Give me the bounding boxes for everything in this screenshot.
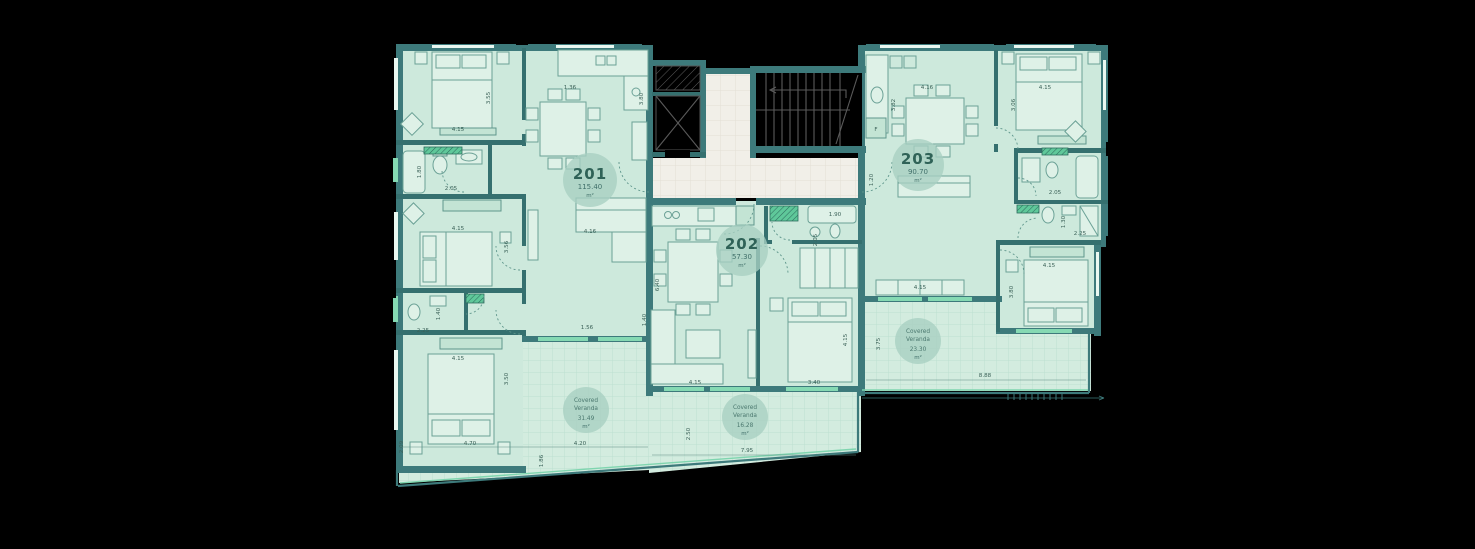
unit-area-unit: m² [586, 192, 594, 199]
unit-number: 201 [573, 165, 607, 183]
window [393, 296, 398, 322]
dresser [1030, 247, 1084, 257]
toilet [433, 156, 447, 174]
window [786, 387, 838, 391]
window [1096, 252, 1099, 296]
nightstand [410, 442, 422, 454]
veranda-area-unit: m² [582, 423, 590, 430]
dimension-label: 4.15 [689, 380, 702, 386]
nightstand [1088, 52, 1100, 64]
dining-table [906, 98, 964, 144]
window [1014, 45, 1074, 48]
dimension-label: 1.80 [417, 165, 423, 178]
dining-table [668, 242, 718, 302]
dimension-label: 4.15 [452, 356, 465, 362]
dimension-label: 3.40 [808, 380, 821, 386]
sliding-door [878, 297, 922, 301]
dimension-label: 3.50 [504, 372, 510, 385]
sliding-door [664, 387, 704, 391]
unit-number: 203 [901, 150, 935, 168]
dimension-label: 4.15 [452, 226, 465, 232]
sliding-door [598, 337, 642, 341]
double-bed [420, 232, 492, 286]
dimension-label: 4.15 [843, 333, 849, 346]
dining-table [540, 102, 586, 156]
sofa-section [651, 364, 723, 384]
veranda-area: 31.49 [578, 416, 595, 422]
window [394, 350, 398, 430]
floor-plan-stage: F [0, 0, 1475, 549]
veranda-badge-201: Covered Veranda 31.49 m² [563, 387, 609, 433]
window [393, 158, 398, 182]
dimension-label: 4.15 [452, 127, 465, 133]
shower-marker [1042, 148, 1068, 155]
dimension-label: 1.86 [539, 454, 545, 467]
dimension-label: 4.15 [1039, 85, 1052, 91]
unit-area-unit: m² [914, 177, 922, 184]
laundry-marker [770, 206, 798, 221]
veranda-badge-203: Covered Veranda 23.30 m² [895, 318, 941, 364]
veranda-label: Veranda [906, 337, 930, 343]
nightstand [1002, 52, 1014, 64]
veranda-label: Veranda [574, 406, 598, 412]
dimension-label: 3.06 [1011, 98, 1017, 111]
veranda-area-unit: m² [741, 430, 749, 437]
washing-machine-marker [1017, 205, 1039, 213]
fridge-label: F [874, 127, 877, 133]
toilet [830, 224, 840, 238]
dimension-label: 7.95 [741, 448, 754, 454]
unit-area: 90.70 [908, 168, 928, 176]
dimension-label: 2.05 [813, 233, 819, 246]
dimension-label: 1.90 [829, 212, 842, 218]
wardrobe [800, 248, 858, 288]
dresser [440, 338, 502, 349]
dimension-label: 4.70 [464, 441, 477, 447]
unit-area-unit: m² [738, 262, 746, 269]
veranda-label: Veranda [733, 413, 757, 419]
nightstand [498, 442, 510, 454]
nightstand [1006, 260, 1018, 272]
nightstand [415, 52, 427, 64]
window [1016, 329, 1072, 333]
dimension-label: 1.40 [436, 307, 442, 320]
dimension-label: 8.88 [979, 373, 992, 379]
veranda-label: Covered [574, 398, 598, 404]
dimension-label: 4.16 [921, 85, 934, 91]
stair-core [656, 66, 862, 157]
nightstand [497, 52, 509, 64]
core-landing-floor [702, 74, 750, 158]
dimension-label: 1.56 [581, 325, 594, 331]
dimension-label: 2.25 [1074, 231, 1087, 237]
window [1103, 60, 1106, 110]
staircase [756, 73, 862, 146]
veranda-label: Covered [733, 405, 757, 411]
ottoman [686, 330, 720, 358]
washbasin-cabinet [1022, 158, 1040, 182]
unit-number: 202 [725, 235, 759, 253]
veranda-area: 16.28 [737, 423, 754, 429]
bathtub [1076, 156, 1098, 198]
toilet [408, 304, 420, 320]
kitchen-counter [558, 50, 648, 76]
dimension-label: 6.40 [655, 278, 661, 291]
shower-marker [424, 147, 462, 154]
veranda-badge-202: Covered Veranda 16.28 m² [722, 394, 768, 440]
dimension-label: 4.15 [1043, 263, 1056, 269]
dimension-label: 3.82 [891, 99, 897, 111]
sliding-door [928, 297, 972, 301]
bench [440, 128, 496, 135]
dimension-label: 4.20 [574, 441, 587, 447]
vent-shaft [656, 66, 700, 90]
dimension-label: 2.05 [1049, 190, 1062, 196]
dimension-label: 3.80 [1009, 285, 1015, 298]
railing-ticks [1008, 394, 1062, 400]
dimension-label: 1.20 [869, 173, 875, 186]
washing-machine-marker [466, 294, 484, 303]
veranda-area: 23.30 [910, 347, 927, 353]
window [394, 212, 398, 260]
dimension-label: 3.55 [486, 91, 492, 104]
window [880, 45, 940, 48]
window [556, 45, 614, 48]
toilet [1046, 162, 1058, 178]
boundary-line [862, 396, 1104, 400]
dimension-label: 2.09 [399, 440, 405, 453]
window [394, 58, 398, 110]
dimension-label: 3.80 [639, 92, 645, 105]
toilet [1042, 207, 1054, 223]
dimension-label: 1.40 [642, 313, 648, 326]
window [432, 45, 494, 48]
elevator [656, 96, 700, 157]
sliding-door [710, 387, 750, 391]
sofa-chaise [612, 232, 646, 262]
unit-badge-201[interactable]: 201 115.40 m² [563, 153, 617, 207]
fridge-unit [632, 122, 647, 160]
tv-unit [528, 210, 538, 260]
dimension-label: 4.16 [584, 229, 597, 235]
washbasin [1062, 206, 1076, 215]
dimension-label: 3.75 [876, 337, 882, 350]
unit-badge-203[interactable]: 203 90.70 m² [892, 139, 944, 191]
sliding-door [538, 337, 588, 341]
washbasin [430, 296, 446, 306]
dresser [443, 200, 501, 211]
dimension-label: 4.15 [914, 285, 927, 291]
dimension-label: 2.25 [417, 328, 430, 334]
veranda-label: Covered [906, 329, 930, 335]
dimension-label: 1.36 [564, 85, 577, 91]
corridor-floor [652, 158, 858, 198]
double-bed [428, 354, 494, 444]
unit-badge-202[interactable]: 202 57.30 m² [716, 224, 768, 276]
dimension-label: 2.05 [445, 186, 458, 192]
unit-area: 57.30 [732, 253, 752, 261]
nightstand [770, 298, 783, 311]
dimension-label: 3.56 [504, 240, 510, 253]
dimension-label: 2.50 [686, 427, 692, 440]
veranda-area-unit: m² [914, 354, 922, 361]
fridge-unit [736, 206, 754, 225]
unit-area: 115.40 [578, 183, 603, 191]
dimension-label: 1.30 [1061, 215, 1067, 228]
floor-plan: F [0, 0, 1475, 549]
tv-unit [748, 330, 756, 378]
